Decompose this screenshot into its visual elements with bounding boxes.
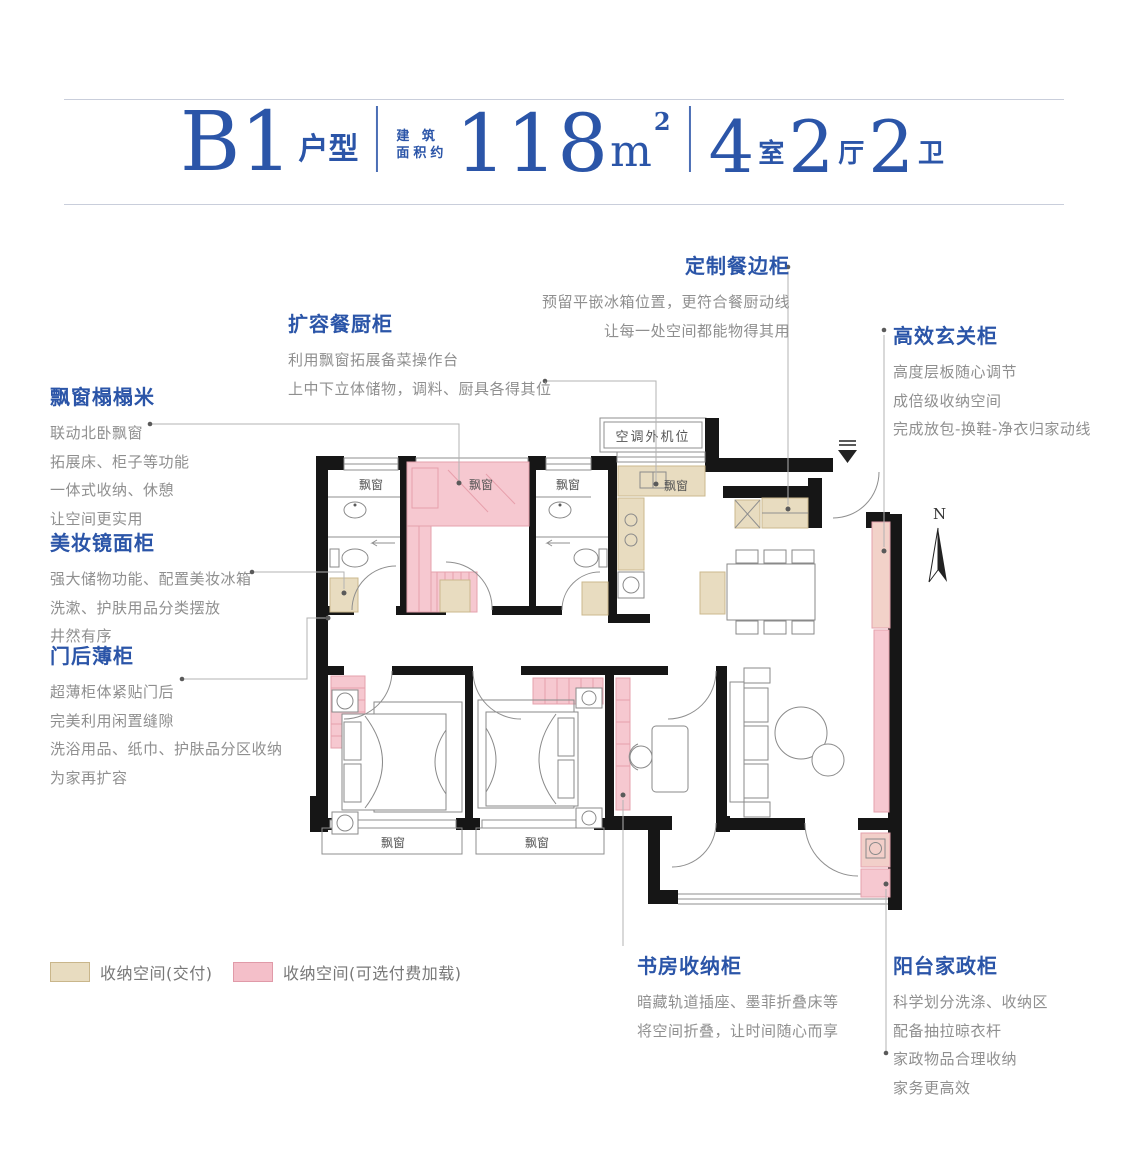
legend-delivered: 收纳空间(交付) xyxy=(50,960,213,984)
annotation-line: 利用飘窗拓展备菜操作台 xyxy=(288,346,552,375)
ac-label: 空调外机位 xyxy=(615,430,690,445)
ac-platform: 空调外机位 xyxy=(600,418,706,452)
dining-set xyxy=(727,550,815,634)
annotation-makeup-cabinet: 美妆镜面柜 强大储物功能、配置美妆冰箱 洗漱、护肤用品分类摆放 井然有序 xyxy=(50,527,252,651)
annotation-line: 超薄柜体紧贴门后 xyxy=(50,678,283,707)
annotation-title: 书房收纳柜 xyxy=(637,950,839,979)
bay-window-label: 飘窗 xyxy=(359,478,383,492)
annotation-line: 让每一处空间都能物得其用 xyxy=(455,317,790,346)
annotation-line: 上中下立体储物，调料、厨具各得其位 xyxy=(288,375,552,404)
annotation-title: 阳台家政柜 xyxy=(893,950,1048,979)
legend-label: 收纳空间(交付) xyxy=(100,960,213,984)
bathroom-b-fixtures xyxy=(536,502,608,567)
annotation-line: 联动北卧飘窗 xyxy=(50,419,190,448)
annotation-line: 配备抽拉晾衣杆 xyxy=(893,1017,1048,1046)
north-label: N xyxy=(933,505,946,523)
legend-swatch-optional xyxy=(233,962,273,982)
annotation-title: 定制餐边柜 xyxy=(455,250,790,279)
legend-label: 收纳空间(可选付费加载) xyxy=(283,960,462,984)
annotation-title: 门后薄柜 xyxy=(50,640,283,669)
annotation-balcony-cabinet: 阳台家政柜 科学划分洗涤、收纳区 配备抽拉晾衣杆 家政物品合理收纳 家务更高效 xyxy=(893,950,1048,1102)
annotation-line: 强大储物功能、配置美妆冰箱 xyxy=(50,565,252,594)
entrance-marker-icon xyxy=(838,441,857,463)
annotation-line: 预留平嵌冰箱位置，更符合餐厨动线 xyxy=(455,288,790,317)
annotation-line: 洗漱、护肤用品分类摆放 xyxy=(50,594,252,623)
bay-window-label: 飘窗 xyxy=(556,478,580,492)
study-furniture xyxy=(629,726,688,792)
annotation-line: 暗藏轨道插座、墨菲折叠床等 xyxy=(637,988,839,1017)
annotation-title: 美妆镜面柜 xyxy=(50,527,252,556)
bay-window-label: 飘窗 xyxy=(381,836,405,850)
annotation-line: 拓展床、柜子等功能 xyxy=(50,448,190,477)
bathroom-a-fixtures xyxy=(328,502,400,567)
annotation-line: 成倍级收纳空间 xyxy=(893,387,1091,416)
annotation-title: 飘窗榻榻米 xyxy=(50,381,190,410)
north-compass-icon: N xyxy=(929,505,947,582)
annotation-bay-tatami: 飘窗榻榻米 联动北卧飘窗 拓展床、柜子等功能 一体式收纳、休憩 让空间更实用 xyxy=(50,381,190,533)
annotation-line: 家政物品合理收纳 xyxy=(893,1045,1048,1074)
annotation-line: 洗浴用品、纸巾、护肤品分区收纳 xyxy=(50,735,283,764)
annotation-behind-door-cabinet: 门后薄柜 超薄柜体紧贴门后 完美利用闲置缝隙 洗浴用品、纸巾、护肤品分区收纳 为… xyxy=(50,640,283,792)
annotation-line: 为家再扩容 xyxy=(50,764,283,793)
bay-windows-bottom xyxy=(322,820,888,904)
annotation-entry-cabinet: 高效玄关柜 高度层板随心调节 成倍级收纳空间 完成放包-换鞋-净衣归家动线 xyxy=(893,320,1091,444)
annotation-sideboard: 定制餐边柜 预留平嵌冰箱位置，更符合餐厨动线 让每一处空间都能物得其用 xyxy=(455,250,790,345)
bay-window-label: 飘窗 xyxy=(469,478,493,492)
annotation-title: 高效玄关柜 xyxy=(893,320,1091,349)
annotation-line: 将空间折叠，让时间随心而享 xyxy=(637,1017,839,1046)
legend-optional: 收纳空间(可选付费加载) xyxy=(233,960,462,984)
floorplan-page: { "header": { "plan_name": "B1", "plan_s… xyxy=(0,0,1128,1169)
legend-swatch-delivered xyxy=(50,962,90,982)
bay-window-label: 飘窗 xyxy=(664,479,688,493)
annotation-line: 高度层板随心调节 xyxy=(893,358,1091,387)
annotation-line: 完美利用闲置缝隙 xyxy=(50,707,283,736)
annotation-line: 一体式收纳、休憩 xyxy=(50,476,190,505)
bedroom-1-furniture xyxy=(332,690,462,834)
bay-window-label: 飘窗 xyxy=(525,836,549,850)
bedroom-2-furniture xyxy=(478,688,602,828)
annotation-line: 家务更高效 xyxy=(893,1074,1048,1103)
annotation-study-cabinet: 书房收纳柜 暗藏轨道插座、墨菲折叠床等 将空间折叠，让时间随心而享 xyxy=(637,950,839,1045)
annotation-line: 科学划分洗涤、收纳区 xyxy=(893,988,1048,1017)
annotation-line: 完成放包-换鞋-净衣归家动线 xyxy=(893,415,1091,444)
living-room-furniture xyxy=(730,668,844,817)
